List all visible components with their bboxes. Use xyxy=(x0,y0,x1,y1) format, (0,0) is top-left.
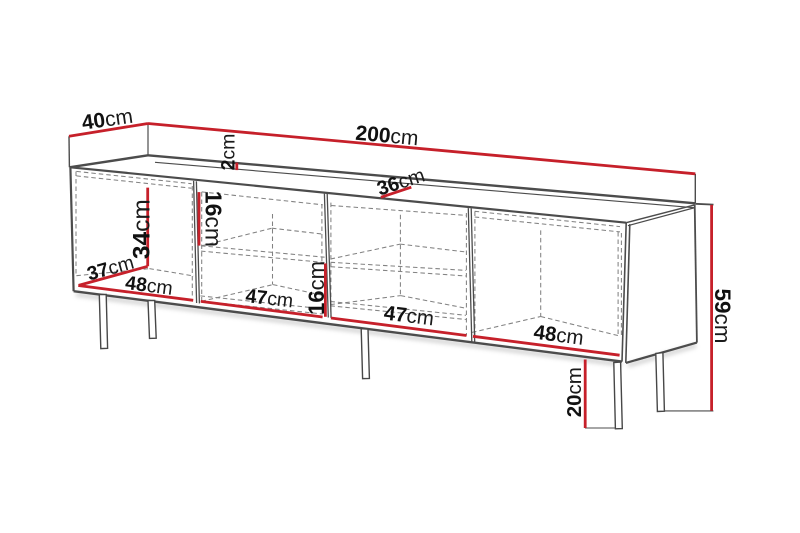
svg-text:2cm: 2cm xyxy=(217,134,239,171)
svg-text:20cm: 20cm xyxy=(563,367,586,417)
svg-text:34cm: 34cm xyxy=(128,199,155,259)
svg-text:59cm: 59cm xyxy=(711,288,736,343)
svg-text:16cm: 16cm xyxy=(304,261,329,315)
svg-text:16cm: 16cm xyxy=(201,191,227,247)
